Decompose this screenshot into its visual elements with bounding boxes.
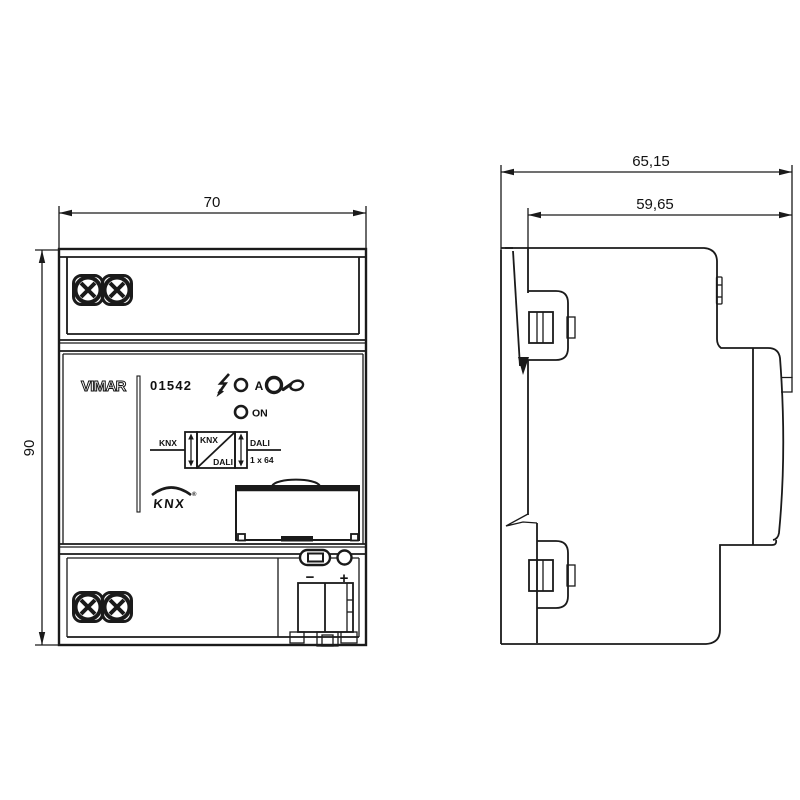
programming-button [338,551,352,565]
brand-logo-text: VIMAR [81,378,127,395]
technical-drawing-page: 70 90 [0,0,800,800]
flap-foot [351,534,358,541]
flap-latch [281,536,313,542]
dim-depth-total-value: 65,15 [632,153,670,170]
gateway-left-bus-label: KNX [159,438,177,448]
programming-slider-knob [308,554,323,562]
hand-press-icon [282,379,304,393]
terminal-screw [74,276,103,305]
knx-logo: KNX ® [152,488,197,511]
dim-height-value: 90 [21,440,38,457]
indicator-row: A ON [217,374,305,420]
dim-width-value: 70 [204,194,221,211]
gateway-box-top-label: KNX [200,435,218,445]
side-view: 65,15 59,65 [501,153,792,644]
gateway-capacity-label: 1 x 64 [250,455,274,465]
terminal-screw [74,593,103,622]
top-terminal-screws [74,276,132,305]
din-module-drawing: 70 90 [0,0,800,800]
dimension-width: 70 [59,194,366,248]
side-bottom-clip [529,541,575,608]
dimension-depth-body: 59,65 [528,196,792,248]
bottom-terminal-screws [74,593,132,622]
gateway-diagram: KNX KNX DALI DALI 1 x 64 [150,432,281,468]
front-view: 70 90 [21,194,366,646]
fault-led-icon [235,379,247,391]
gateway-right-bus-label: DALI [250,438,270,448]
knx-logo-arch [152,488,191,496]
side-body-outline [501,247,792,644]
knx-logo-text: KNX [153,496,186,511]
dimension-depth-total: 65,15 [501,153,792,378]
label-divider [137,376,140,512]
terminal-screw [103,593,132,622]
terminal-screw [103,276,132,305]
dimension-height: 90 [21,250,58,645]
lightning-icon [217,374,230,397]
on-led-icon [235,406,247,418]
gateway-box-bottom-label: DALI [213,457,233,467]
cover-flap [236,480,359,542]
front-body-outline [59,249,366,645]
dim-depth-body-value: 59,65 [636,196,674,213]
indicator-a-label: A [255,379,264,393]
programming-controls: − + [300,550,352,587]
programming-button-icon [267,378,282,393]
flap-foot [238,534,245,541]
knx-registered-mark: ® [192,491,197,498]
side-top-clip [528,291,575,360]
product-code-text: 01542 [150,378,191,393]
indicator-on-label: ON [252,408,268,420]
